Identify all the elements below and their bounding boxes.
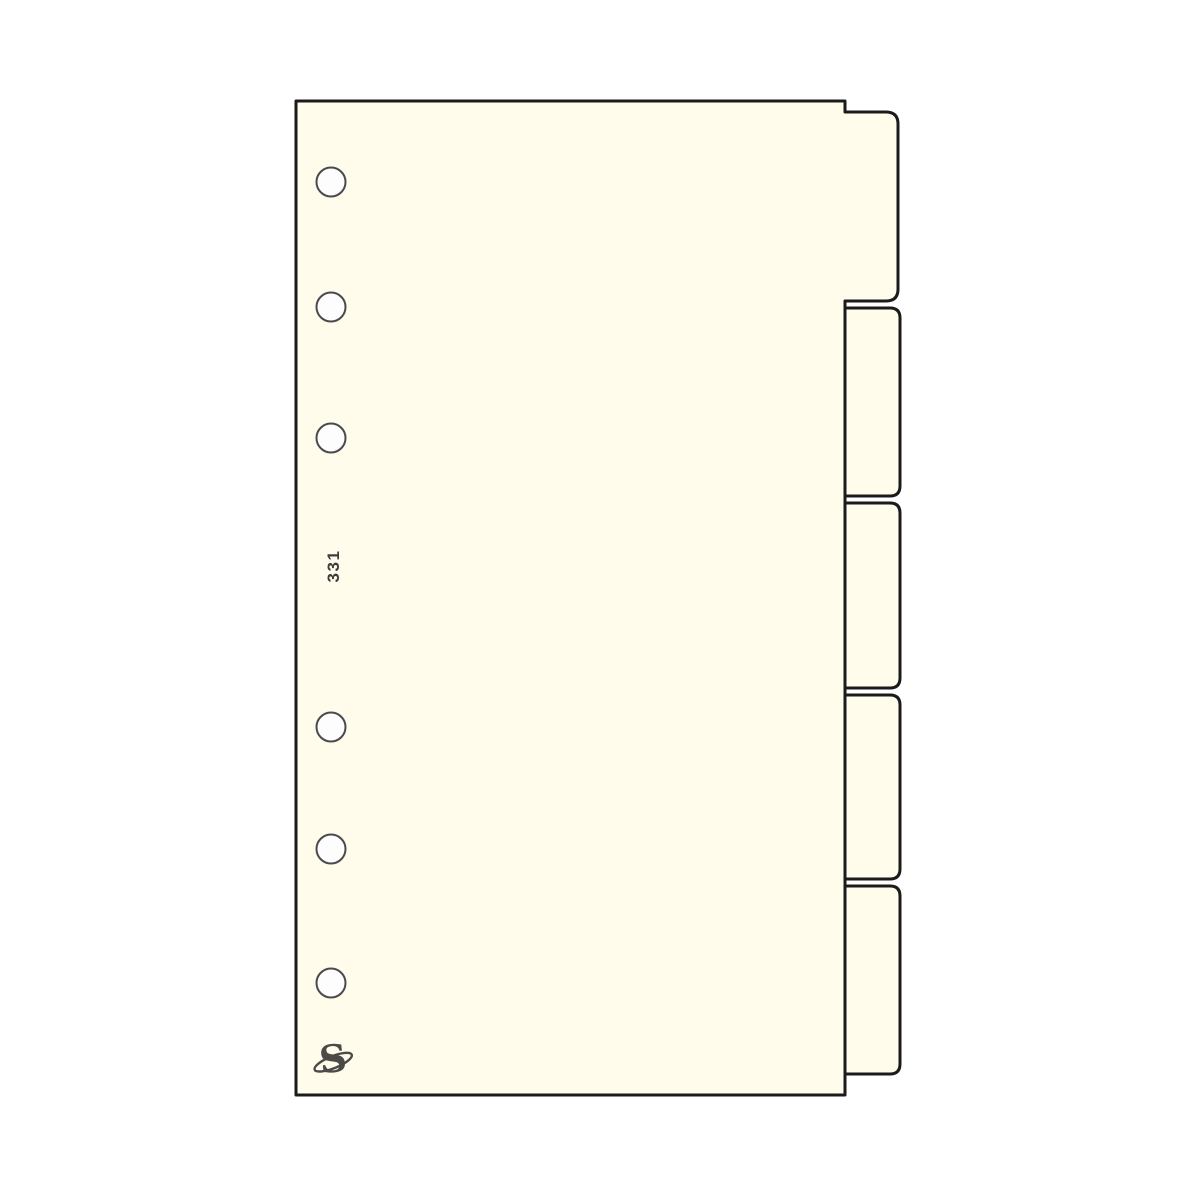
punch-hole-6 xyxy=(317,969,346,998)
punch-hole-3 xyxy=(317,424,346,453)
punch-hole-5 xyxy=(317,835,346,864)
logo-letter: S xyxy=(317,1035,349,1083)
punch-hole-2 xyxy=(317,293,346,322)
index-tab-4 xyxy=(840,695,900,879)
product-image-divider-set: S 331 xyxy=(0,0,1200,1200)
divider-illustration: S xyxy=(0,0,1200,1200)
index-tab-2 xyxy=(840,308,900,496)
punch-hole-4 xyxy=(317,713,346,742)
rear-tabs xyxy=(840,308,900,1074)
index-tab-3 xyxy=(840,503,900,688)
page-number-label: 331 xyxy=(324,550,344,583)
divider-sheet xyxy=(296,101,898,1095)
punch-hole-1 xyxy=(317,168,346,197)
index-tab-5 xyxy=(840,886,900,1074)
